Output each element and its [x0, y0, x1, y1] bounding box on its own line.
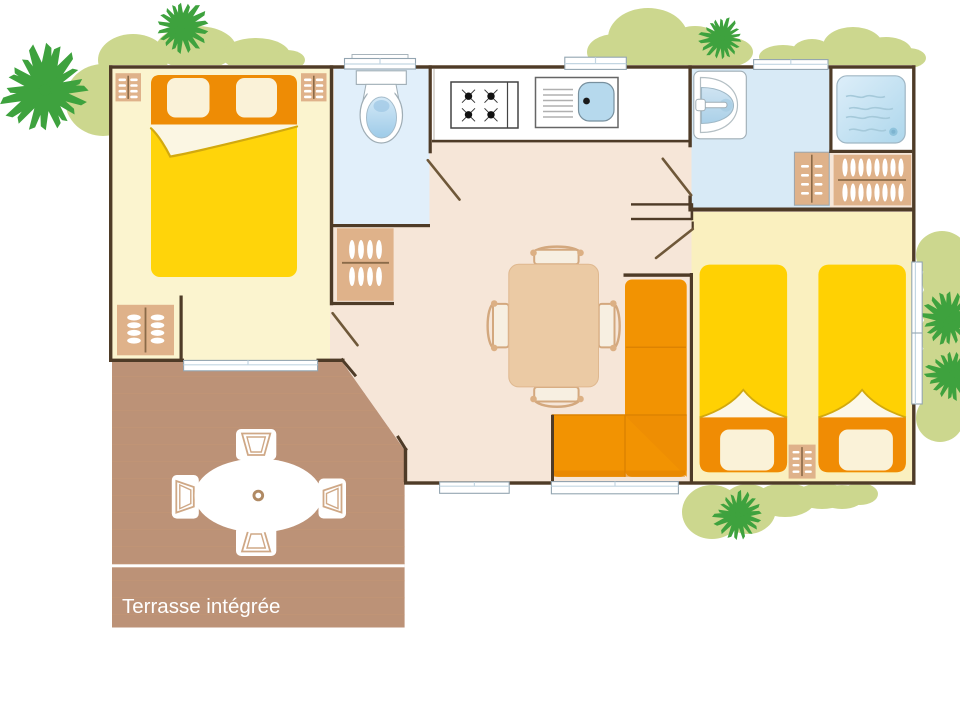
- svg-text:Terrasse intégrée: Terrasse intégrée: [122, 595, 280, 618]
